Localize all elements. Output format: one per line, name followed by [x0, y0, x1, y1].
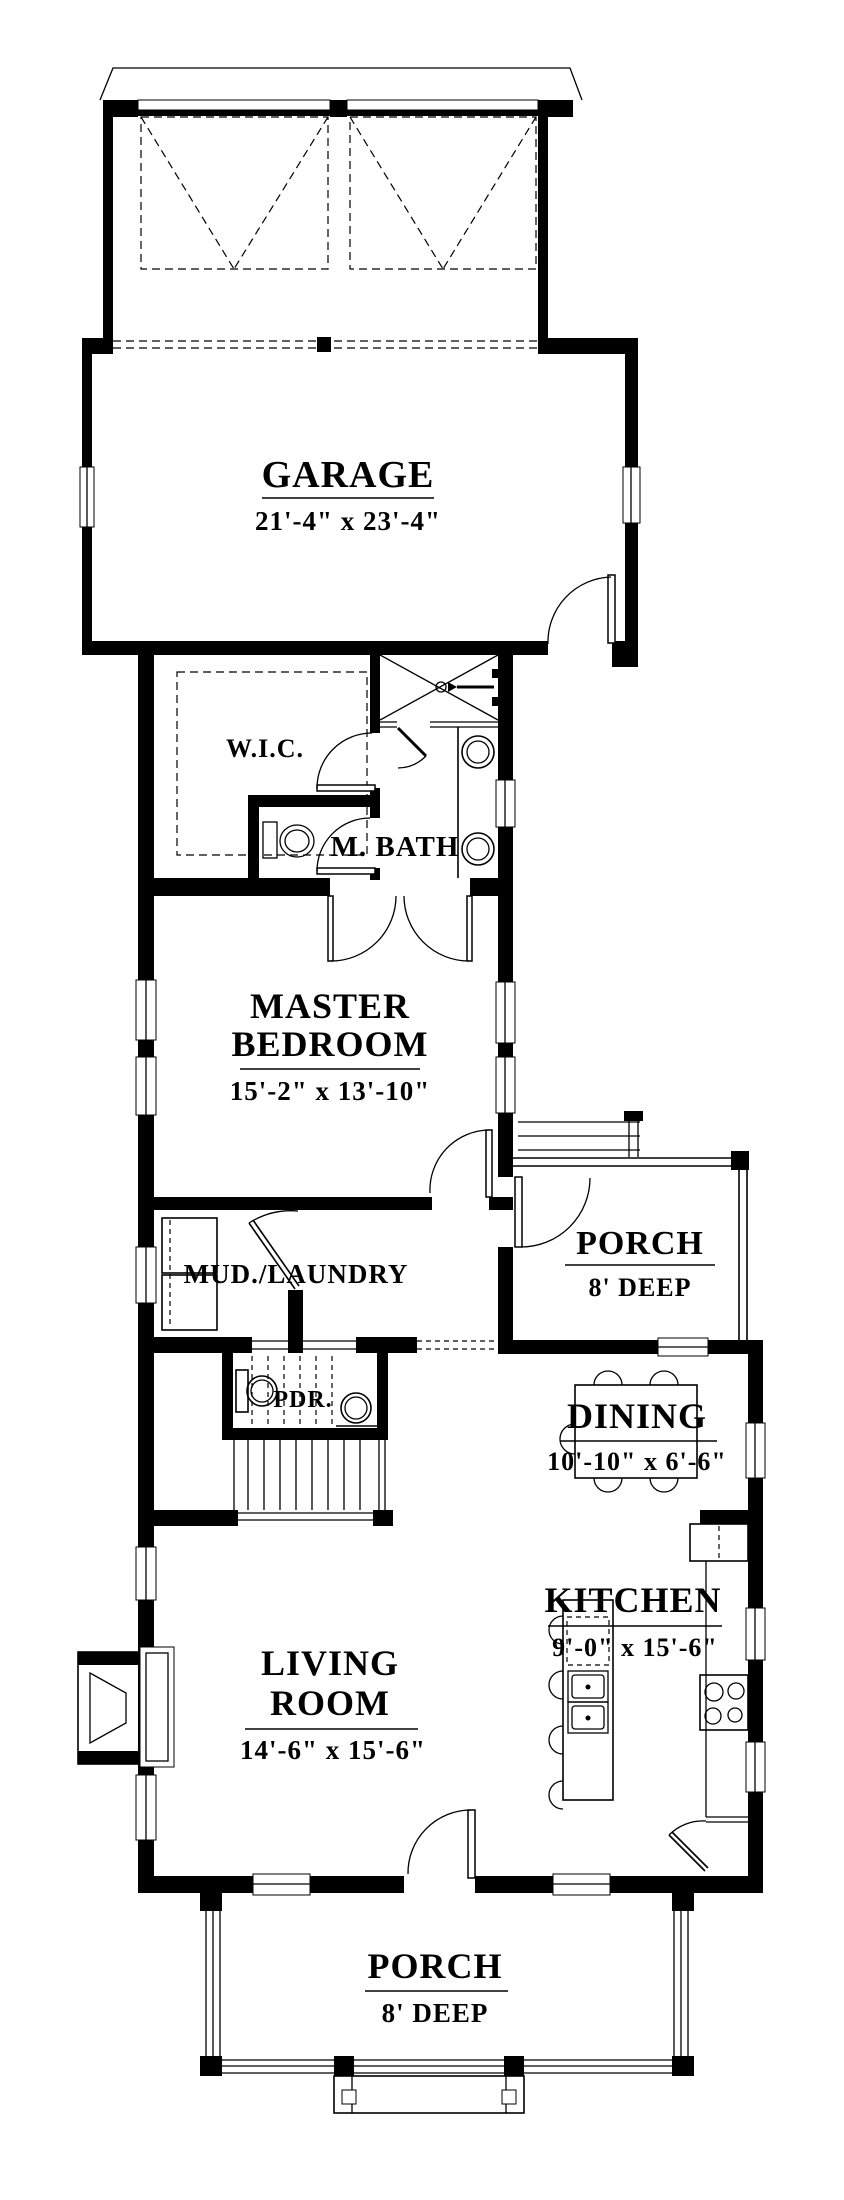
dining-label: DINING [567, 1396, 707, 1436]
kitchen: KITCHEN 9'-0" x 15'-6" [544, 1510, 763, 1871]
french-doors [328, 896, 472, 961]
living-room: LIVING ROOM 14'-6" x 15'-6" [78, 1643, 475, 1878]
side-porch-dims: 8' DEEP [588, 1273, 691, 1302]
shower [380, 655, 502, 768]
side-porch-steps [518, 1111, 643, 1157]
cooktop [700, 1675, 748, 1730]
floor-plan-page: GARAGE 21'-4" x 23'-4" [0, 0, 844, 2200]
master-bath: M. BATH [248, 655, 502, 880]
island-sink [568, 1671, 608, 1733]
fireplace [78, 1647, 174, 1767]
front-porch-dims: 8' DEEP [382, 1998, 489, 2028]
powder-room: PDR. [222, 1353, 388, 1440]
pedestal-sink [236, 1370, 277, 1412]
pantry-corner-door [669, 1821, 708, 1871]
porch-post [200, 1893, 222, 1911]
wic-label: W.I.C. [226, 734, 304, 763]
dining-dims: 10'-10" x 6'-6" [547, 1447, 727, 1476]
vanity [458, 727, 494, 878]
porch-steps [334, 2076, 524, 2113]
mud-laundry-label: MUD./LAUNDRY [184, 1259, 409, 1289]
refrigerator [690, 1524, 748, 1561]
master-bedroom: MASTER BEDROOM 15'-2" x 13'-10" [138, 878, 513, 1210]
dining-room: DINING 10'-10" x 6'-6" [547, 1371, 727, 1492]
toilet [263, 822, 314, 858]
garage-door-bay [103, 100, 573, 345]
master-bath-label: M. BATH [331, 831, 460, 863]
master-bedroom-dims: 15'-2" x 13'-10" [230, 1076, 430, 1106]
front-door [408, 1810, 475, 1878]
kitchen-dims: 9'-0" x 15'-6" [552, 1633, 718, 1662]
living-room-label-1: LIVING [261, 1643, 399, 1683]
garage-window-left [80, 467, 94, 527]
powder-toilet [336, 1393, 377, 1426]
living-room-dims: 14'-6" x 15'-6" [240, 1735, 426, 1765]
garage: GARAGE 21'-4" x 23'-4" [80, 337, 640, 667]
wic-door [317, 733, 375, 791]
staircase [138, 1440, 393, 1526]
floor-plan-drawing: GARAGE 21'-4" x 23'-4" [0, 0, 844, 2200]
garage-door-panel-left [138, 100, 330, 110]
master-bedroom-label-2: BEDROOM [231, 1024, 428, 1064]
kitchen-island [549, 1600, 613, 1809]
master-bedroom-label-1: MASTER [250, 986, 410, 1026]
side-porch-label: PORCH [576, 1225, 704, 1262]
porch-post [672, 2056, 694, 2076]
front-porch-label: PORCH [368, 1946, 503, 1986]
garage-dims: 21'-4" x 23'-4" [255, 506, 441, 536]
side-porch: PORCH 8' DEEP [513, 1111, 749, 1340]
garage-door-swing-left [141, 117, 328, 269]
porch-post [672, 1893, 694, 1911]
garage-door-swing-right [350, 117, 536, 269]
powder-room-label: PDR. [273, 1387, 332, 1413]
garage-door-panel-right [347, 100, 538, 110]
bedroom-door [430, 1130, 492, 1197]
kitchen-label: KITCHEN [544, 1580, 721, 1620]
shower-head-icon [436, 669, 502, 706]
front-wall-openings [253, 1874, 610, 1895]
driveway-apron [100, 68, 582, 100]
garage-window-right [623, 467, 640, 523]
porch-post [731, 1151, 749, 1170]
mud-laundry: MUD./LAUNDRY [138, 1211, 498, 1353]
front-porch: PORCH 8' DEEP [200, 1893, 694, 2113]
living-room-label-2: ROOM [270, 1683, 390, 1723]
porch-post [200, 2056, 222, 2076]
garage-label: GARAGE [262, 454, 435, 496]
porch-post [504, 2056, 524, 2076]
garage-service-door [548, 575, 615, 644]
porch-post [334, 2056, 354, 2076]
